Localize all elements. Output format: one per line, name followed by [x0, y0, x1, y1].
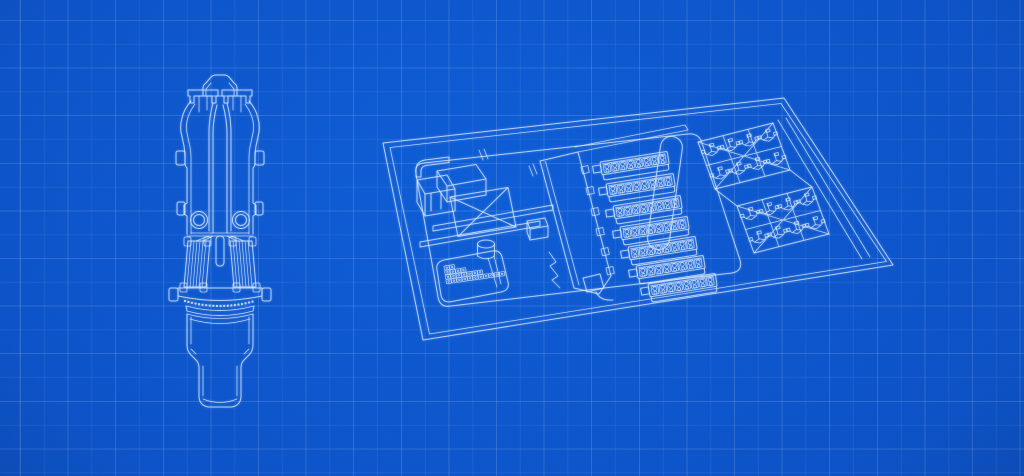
- blueprint-canvas: [0, 0, 1024, 476]
- vignette-overlay: [0, 0, 1024, 476]
